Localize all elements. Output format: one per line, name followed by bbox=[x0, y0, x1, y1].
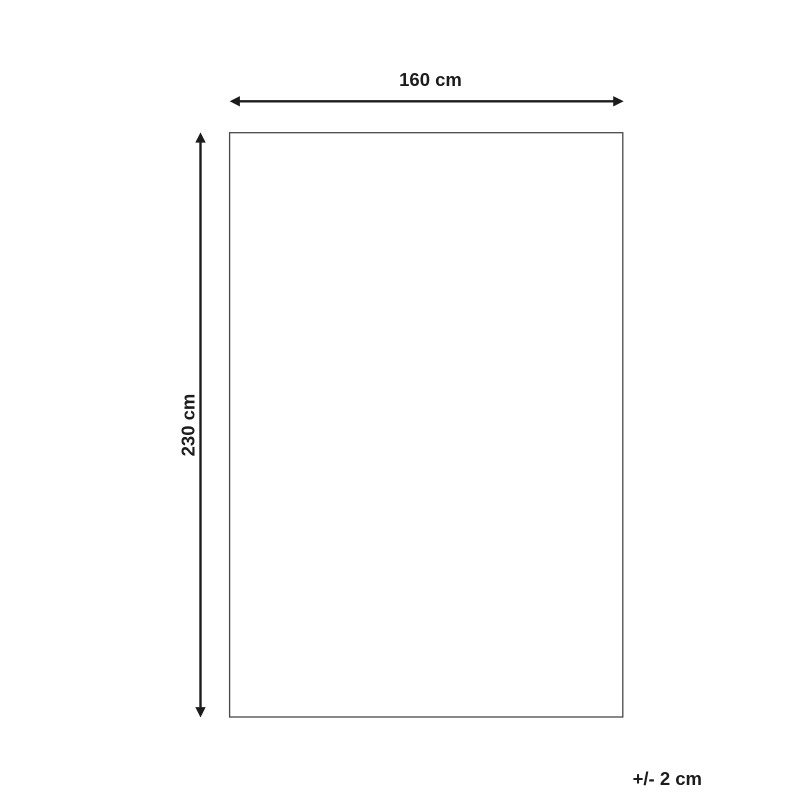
svg-text:160 cm: 160 cm bbox=[399, 69, 462, 90]
svg-text:230 cm: 230 cm bbox=[178, 394, 199, 457]
svg-text:+/- 2 cm: +/- 2 cm bbox=[633, 768, 702, 789]
